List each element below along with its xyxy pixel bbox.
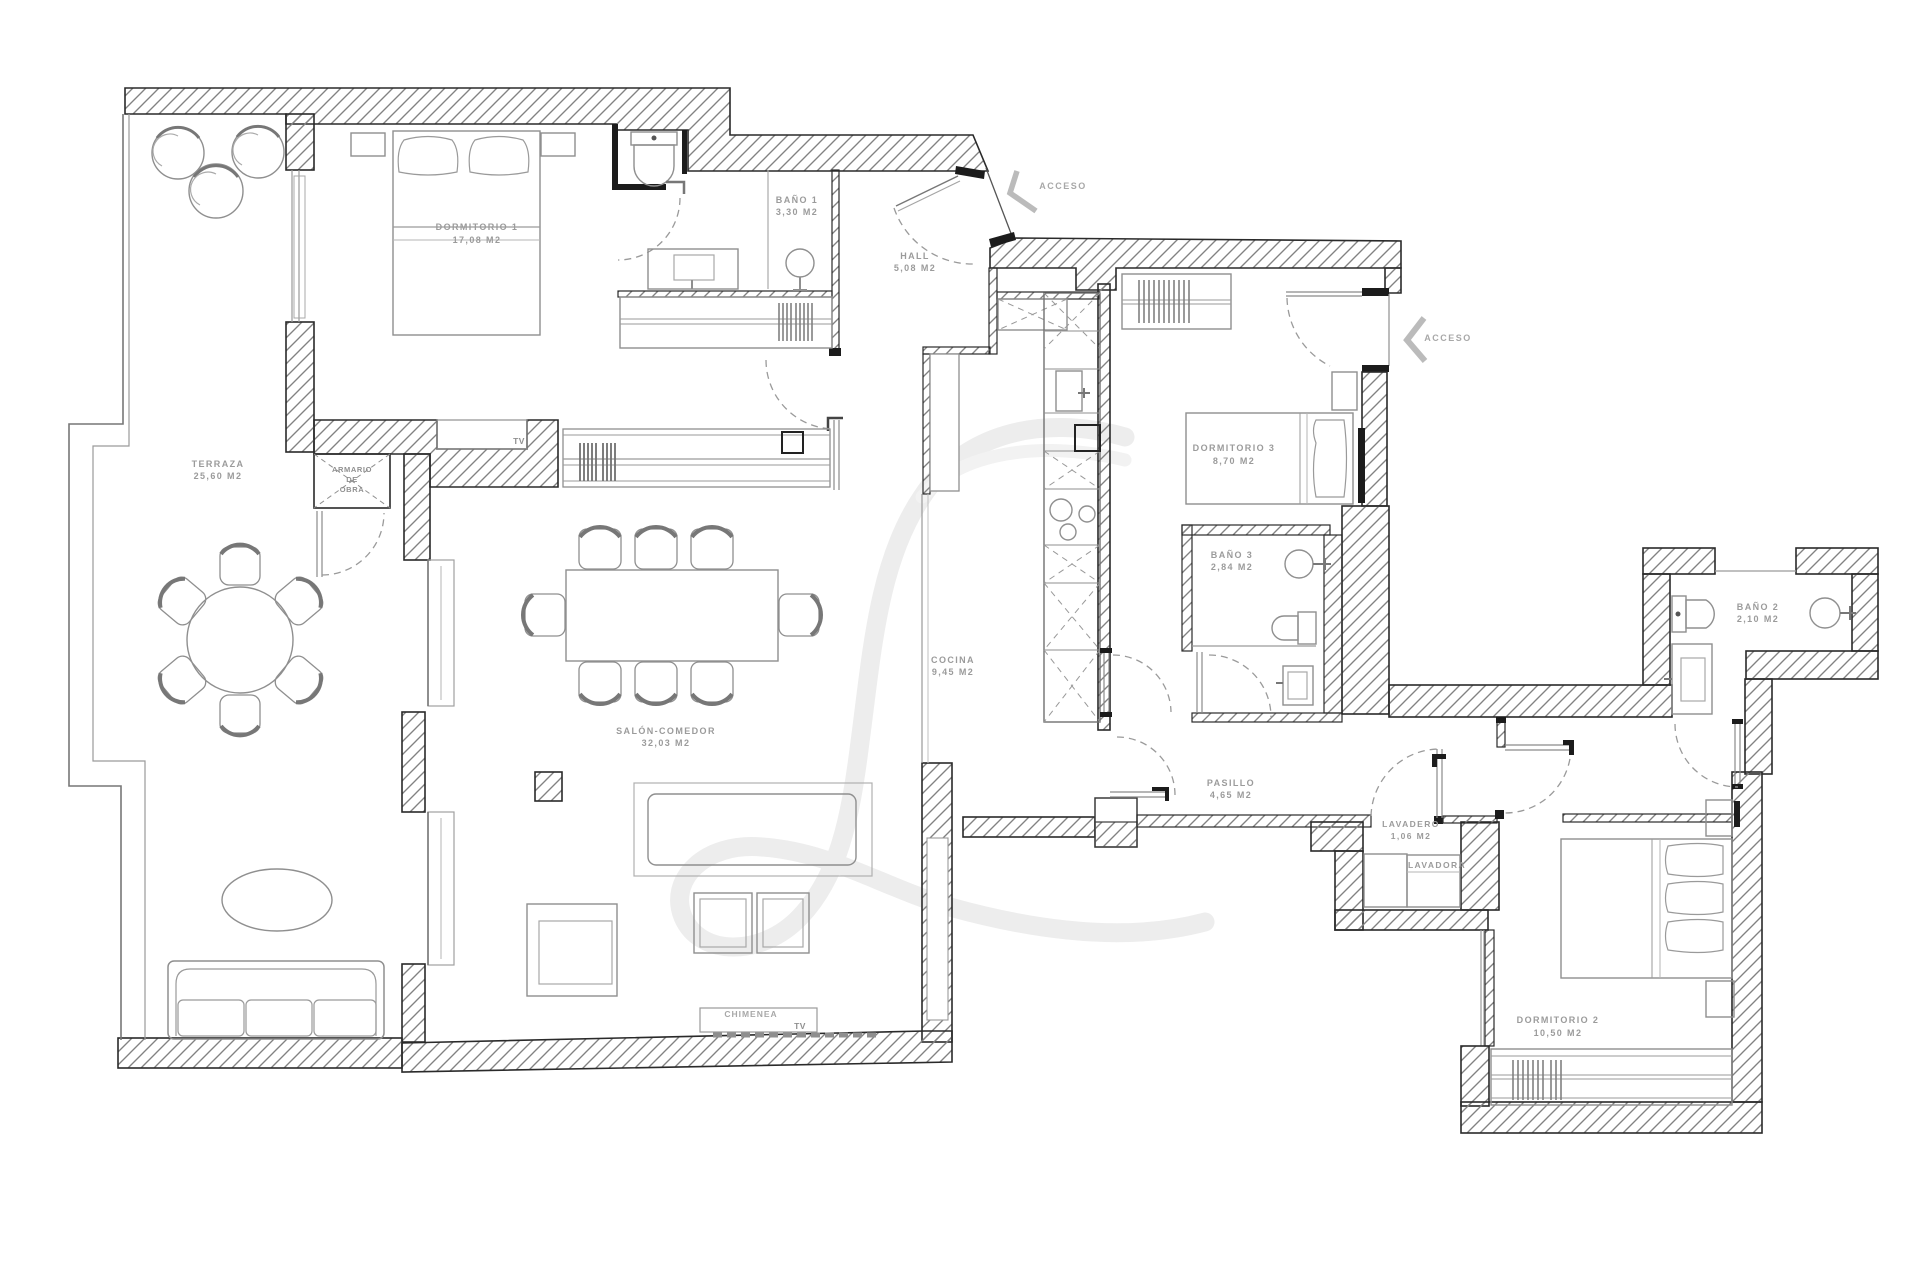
svg-text:LAVADORA: LAVADORA <box>1408 860 1466 870</box>
svg-text:9,45 M2: 9,45 M2 <box>932 667 974 677</box>
svg-text:COCINA: COCINA <box>931 655 975 665</box>
svg-text:DE: DE <box>346 475 358 484</box>
svg-text:BAÑO 1: BAÑO 1 <box>776 195 818 205</box>
svg-text:DORMITORIO 2: DORMITORIO 2 <box>1517 1015 1600 1025</box>
svg-text:HALL: HALL <box>900 251 930 261</box>
svg-text:CHIMENEA: CHIMENEA <box>724 1009 777 1019</box>
svg-text:DORMITORIO 1: DORMITORIO 1 <box>436 222 519 232</box>
svg-text:10,50 M2: 10,50 M2 <box>1534 1028 1583 1038</box>
svg-text:BAÑO 3: BAÑO 3 <box>1211 550 1253 560</box>
svg-text:1,06 M2: 1,06 M2 <box>1391 831 1432 841</box>
svg-text:17,08 M2: 17,08 M2 <box>453 235 502 245</box>
svg-text:OBRA: OBRA <box>340 485 364 494</box>
svg-text:ARMARIO: ARMARIO <box>332 465 372 474</box>
svg-text:BAÑO 2: BAÑO 2 <box>1737 602 1779 612</box>
svg-text:5,08 M2: 5,08 M2 <box>894 263 936 273</box>
svg-text:ACCESO: ACCESO <box>1039 181 1087 191</box>
svg-text:3,30 M2: 3,30 M2 <box>776 207 818 217</box>
svg-text:DORMITORIO 3: DORMITORIO 3 <box>1193 443 1276 453</box>
svg-text:TERRAZA: TERRAZA <box>192 459 245 469</box>
svg-text:TV: TV <box>513 436 525 446</box>
svg-text:SALÓN-COMEDOR: SALÓN-COMEDOR <box>616 725 716 736</box>
svg-text:PASILLO: PASILLO <box>1207 778 1255 788</box>
svg-text:25,60 M2: 25,60 M2 <box>194 471 243 481</box>
svg-text:TV: TV <box>794 1021 806 1031</box>
svg-text:8,70 M2: 8,70 M2 <box>1213 456 1255 466</box>
svg-text:2,84 M2: 2,84 M2 <box>1211 562 1253 572</box>
svg-text:32,03 M2: 32,03 M2 <box>642 738 691 748</box>
svg-text:ACCESO: ACCESO <box>1424 333 1472 343</box>
svg-text:LAVADERO: LAVADERO <box>1382 819 1440 829</box>
svg-text:2,10 M2: 2,10 M2 <box>1737 614 1779 624</box>
svg-text:4,65 M2: 4,65 M2 <box>1210 790 1252 800</box>
